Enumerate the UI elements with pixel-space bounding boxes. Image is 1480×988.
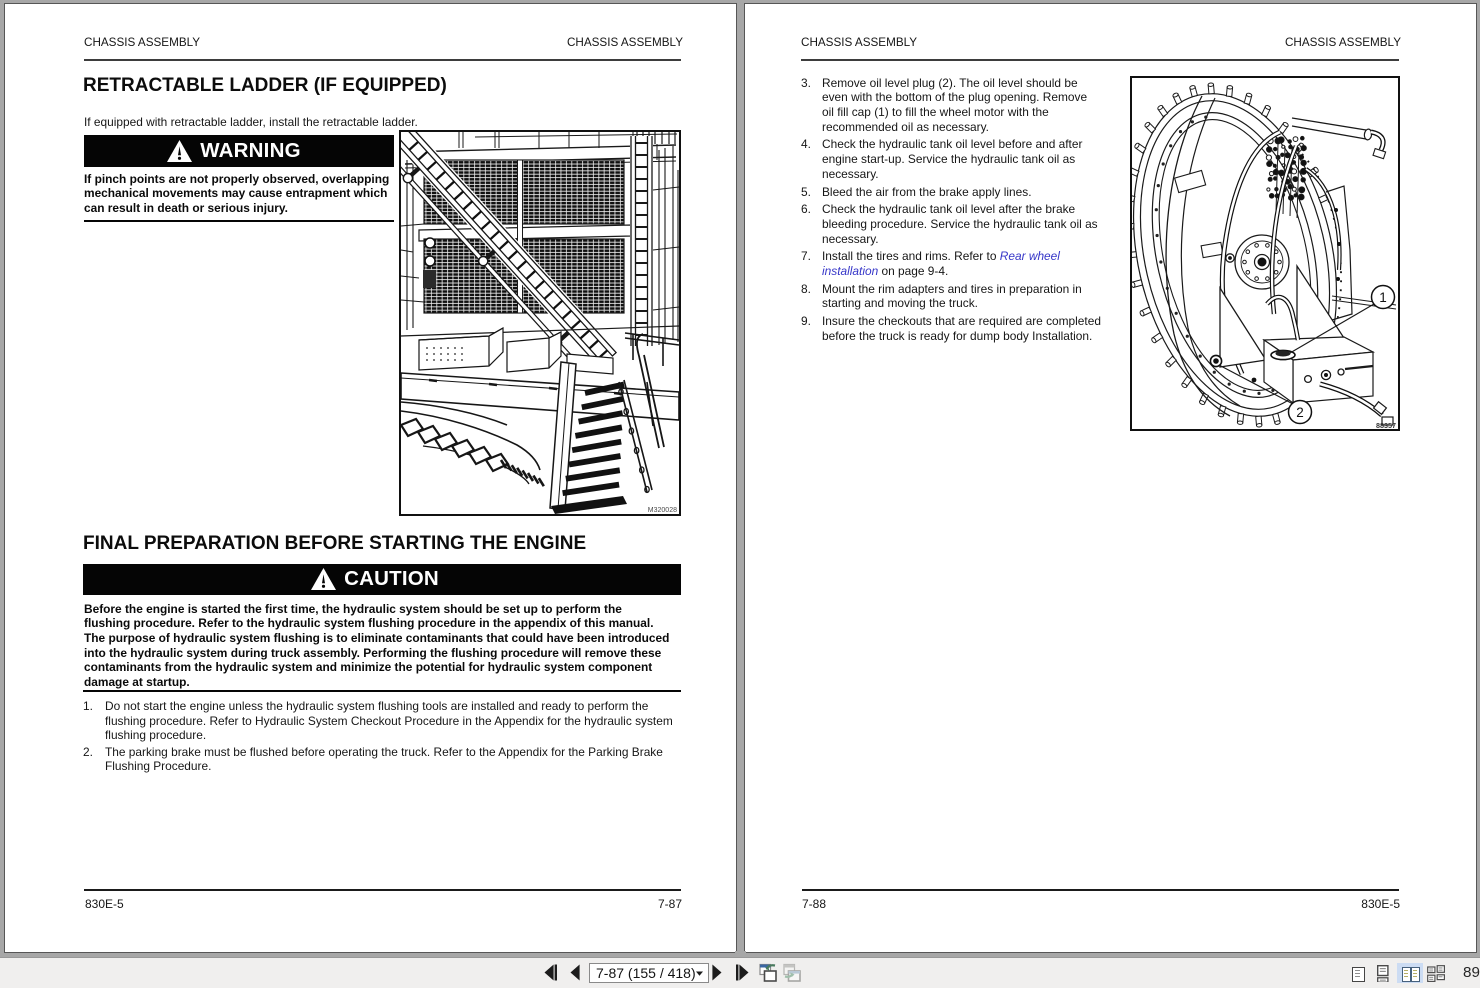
svg-text:M320028: M320028 bbox=[648, 507, 677, 514]
svg-text:2: 2 bbox=[1296, 405, 1304, 420]
svg-text:1: 1 bbox=[1379, 290, 1387, 305]
svg-text:88357: 88357 bbox=[1376, 421, 1396, 430]
